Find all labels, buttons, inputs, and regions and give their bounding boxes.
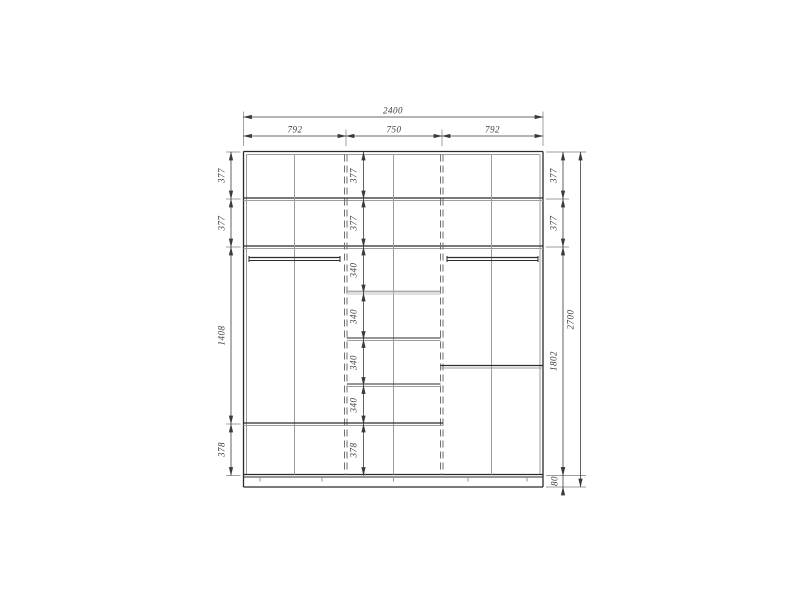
dim-label-total-height: 2700 [566, 310, 576, 330]
dim-label-middle-row6: 340 [349, 398, 359, 414]
dim-label-right-row1: 377 [549, 168, 559, 184]
technical-drawing-page: 2400 792 750 792 377 377 1408 378 377 37… [0, 0, 800, 600]
dim-label-section-right: 792 [485, 125, 500, 135]
dim-label-left-row4: 378 [217, 442, 227, 458]
dimensions-top: 2400 792 750 792 [244, 106, 544, 147]
dimensions-left: 377 377 1408 378 [217, 152, 241, 476]
dim-label-section-middle: 750 [387, 125, 402, 135]
dim-label-right-row2: 377 [549, 216, 559, 232]
dim-label-middle-row7: 378 [349, 443, 359, 459]
dim-label-middle-row4: 340 [349, 309, 359, 325]
dimensions-right: 377 377 1802 80 2700 [546, 152, 586, 495]
dim-label-left-row3: 1408 [217, 326, 227, 346]
dim-label-left-row2: 377 [217, 216, 227, 232]
dim-label-middle-row5: 340 [349, 355, 359, 371]
dim-label-middle-row1: 377 [349, 168, 359, 184]
bottom-foot-ticks [260, 477, 527, 482]
wardrobe-structure [244, 152, 544, 488]
dim-label-plinth: 80 [550, 476, 560, 486]
wardrobe-dimension-drawing: 2400 792 750 792 377 377 1408 378 377 37… [0, 0, 800, 600]
dim-label-total-width: 2400 [383, 106, 403, 116]
dim-label-left-row1: 377 [217, 168, 227, 184]
hanging-rod-right [447, 256, 538, 262]
dim-label-right-row3: 1802 [549, 351, 559, 371]
dim-label-middle-row3: 340 [349, 263, 359, 279]
dim-label-middle-row2: 377 [349, 216, 359, 232]
dim-label-section-left: 792 [288, 125, 303, 135]
